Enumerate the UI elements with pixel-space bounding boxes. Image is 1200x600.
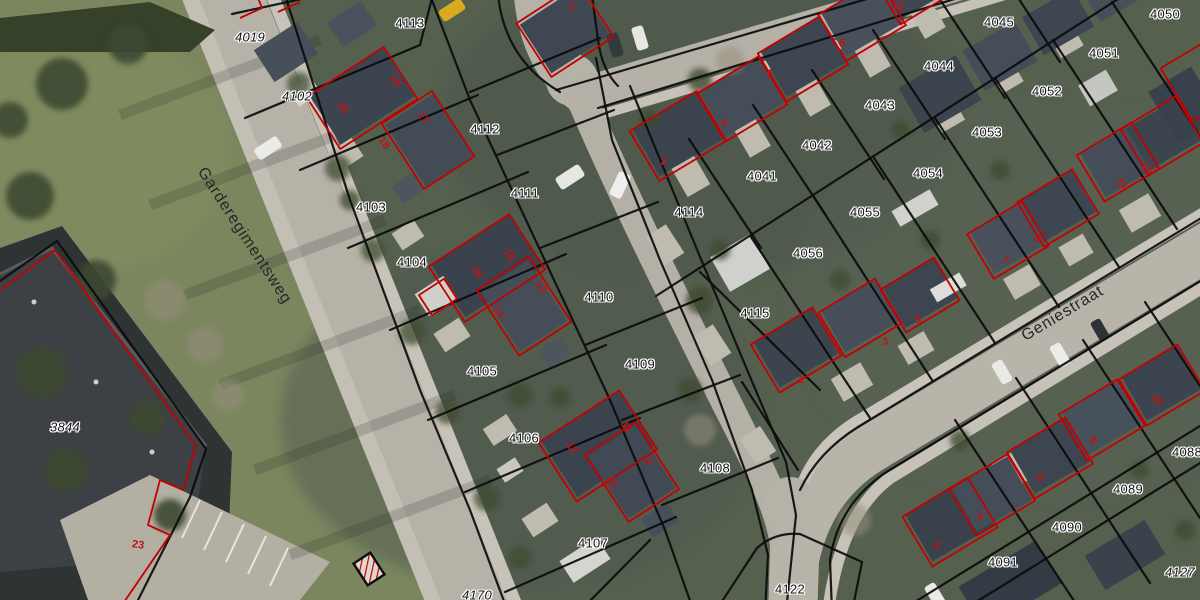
- aerial-photo-layer: [0, 0, 1200, 600]
- aerial-cadastral-map[interactable]: Garderegimentsweg Geniestraat 4019410241…: [0, 0, 1200, 600]
